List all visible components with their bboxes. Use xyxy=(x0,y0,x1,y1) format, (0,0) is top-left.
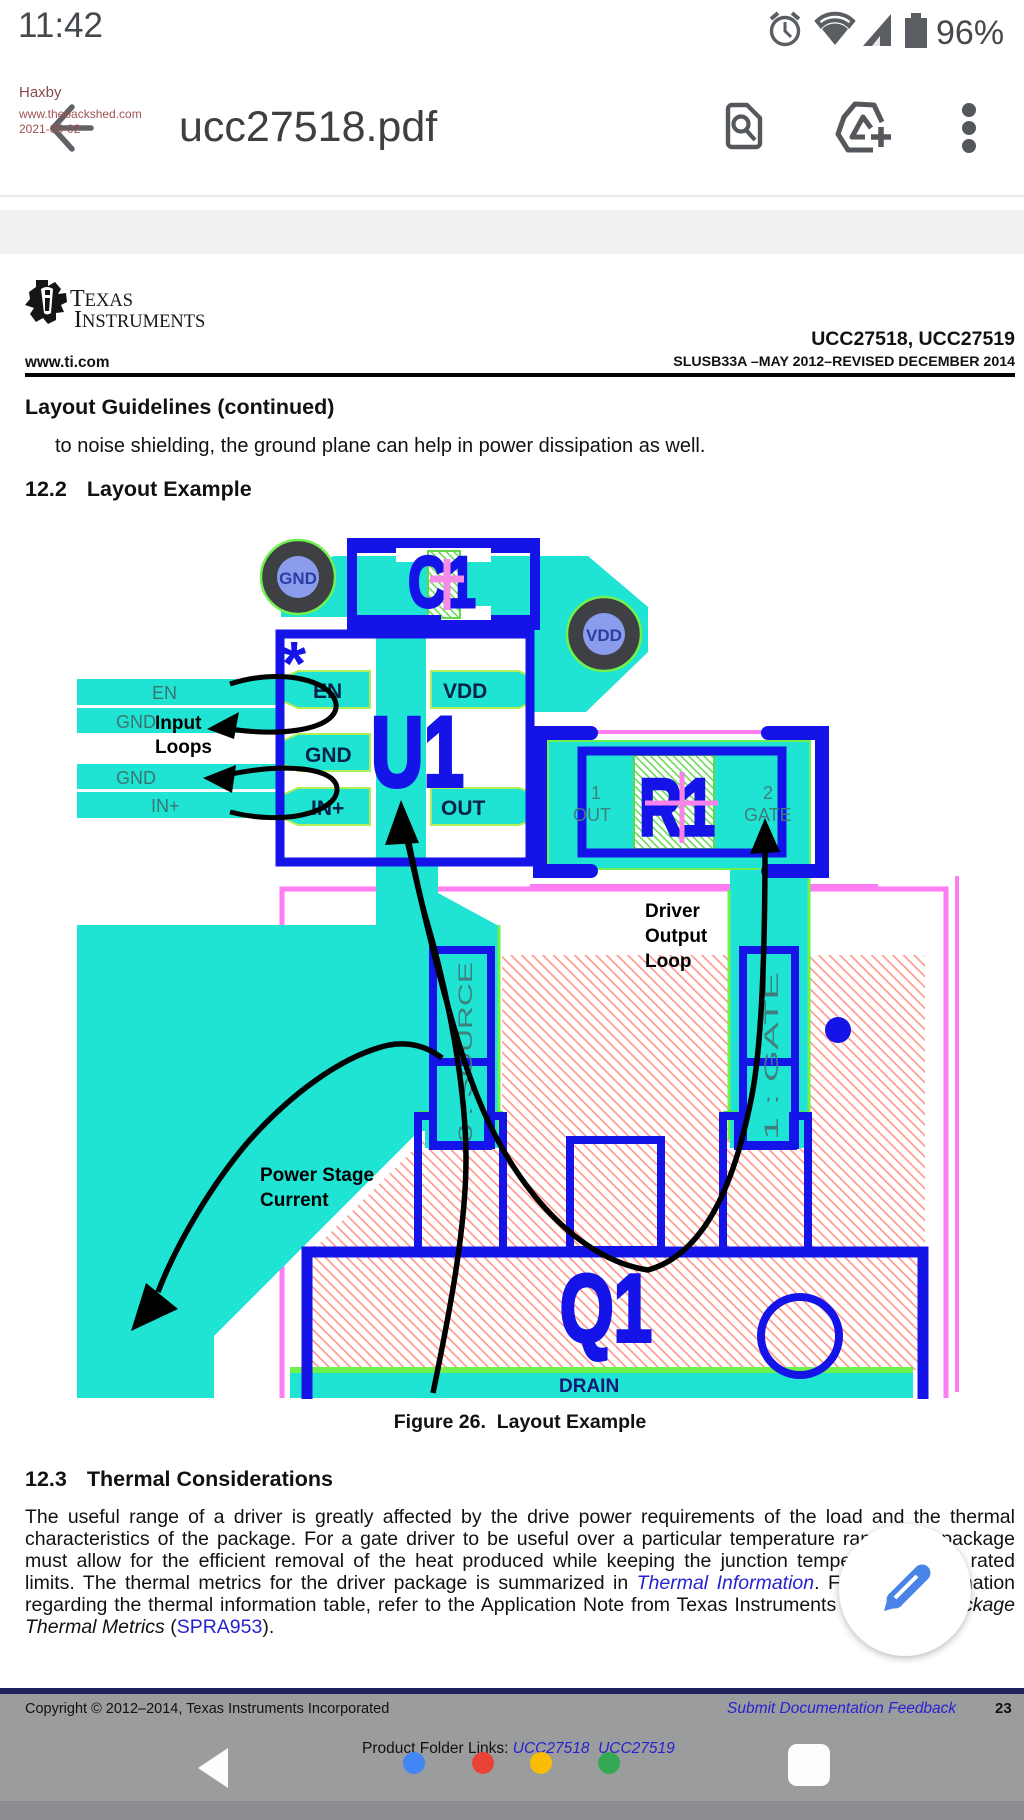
svg-text:GND: GND xyxy=(279,569,317,588)
svg-text:VDD: VDD xyxy=(586,626,622,645)
svg-text:GND: GND xyxy=(116,768,156,788)
svg-text:IN+: IN+ xyxy=(151,796,180,816)
svg-text:Loops: Loops xyxy=(155,737,212,758)
svg-text:R1: R1 xyxy=(639,763,715,853)
svg-text:GND: GND xyxy=(305,744,352,767)
svg-text:DRAIN: DRAIN xyxy=(559,1376,619,1397)
svg-text:Driver: Driver xyxy=(645,901,701,922)
svg-text:1: 1 xyxy=(591,783,601,803)
svg-text:GND: GND xyxy=(116,712,156,732)
svg-text:OUT: OUT xyxy=(573,805,611,825)
svg-text:2: 2 xyxy=(763,783,773,803)
svg-text:1 : GATE: 1 : GATE xyxy=(762,972,783,1140)
svg-text:Q1: Q1 xyxy=(560,1255,652,1362)
svg-text:U1: U1 xyxy=(371,696,464,807)
svg-text:EN: EN xyxy=(152,683,177,703)
svg-text:Power Stage: Power Stage xyxy=(260,1165,374,1186)
svg-text:Current: Current xyxy=(260,1190,329,1211)
svg-text:Output: Output xyxy=(645,926,708,947)
svg-text:*: * xyxy=(282,630,307,699)
svg-text:Loop: Loop xyxy=(645,951,691,972)
svg-text:C1: C1 xyxy=(408,543,476,623)
svg-text:VDD: VDD xyxy=(443,680,487,703)
svg-text:Input: Input xyxy=(155,713,202,734)
svg-text:OUT: OUT xyxy=(441,797,486,820)
svg-text:GATE: GATE xyxy=(744,805,792,825)
